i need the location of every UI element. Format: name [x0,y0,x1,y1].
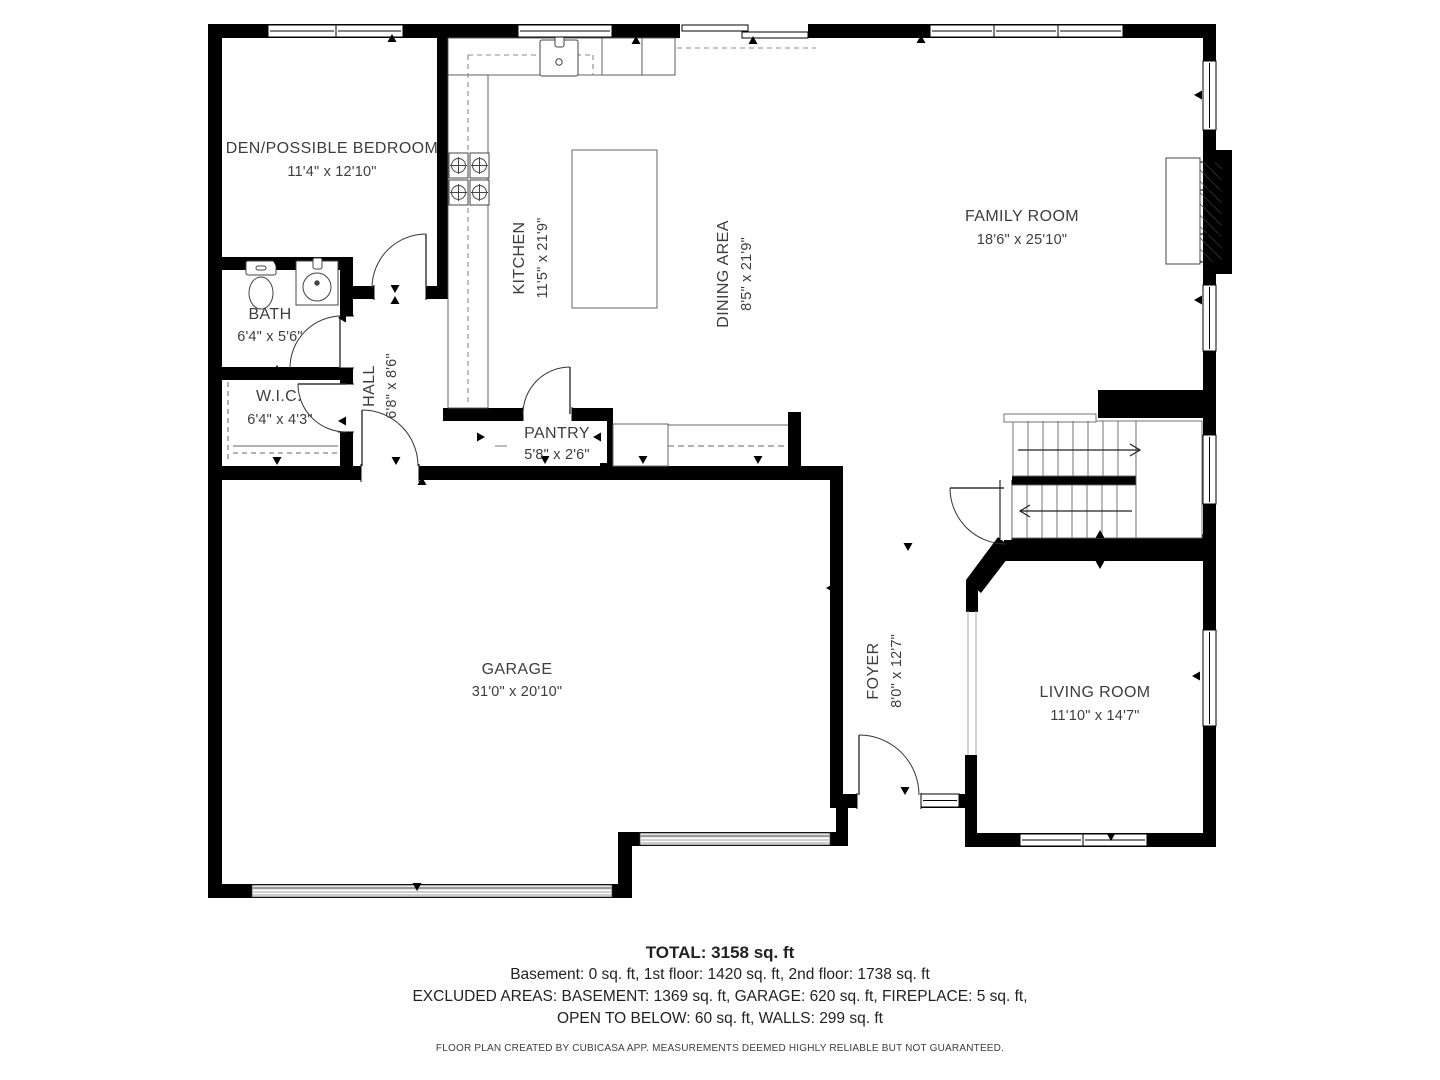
room-label-pantry: PANTRY [524,425,590,442]
opening-garage-door [361,464,419,482]
floor-plan-canvas: DEN/POSSIBLE BEDROOM 11'4" x 12'10" BATH… [0,0,1440,1080]
wall-closet-right [788,412,801,480]
family-room-side-window-1 [1203,61,1216,130]
room-label-den: DEN/POSSIBLE BEDROOM [226,140,439,157]
room-dims-dining: 8'5" x 21'9" [739,237,755,311]
room-label-dining: DINING AREA [715,220,732,328]
kitchen-counters [448,38,675,408]
room-dims-den: 11'4" x 12'10" [287,164,376,180]
room-dims-pantry: 5'8" x 2'6" [524,447,590,463]
room-dims-kitchen: 11'5" x 21'9" [535,217,551,298]
garage-door-main [252,885,612,897]
wall-outer-left [208,24,222,898]
room-dims-wic: 6'4" x 4'3" [247,412,313,428]
toilet-fixture [246,261,276,309]
appliance-2 [642,38,675,75]
room-label-foyer: FOYER [865,642,882,699]
stairs-landing [1136,421,1202,538]
room-dims-hall: 6'8" x 8'6" [384,353,400,419]
kitchen-window [518,25,612,37]
fireplace-hearth [1166,158,1200,264]
living-room-side-window [1203,630,1216,726]
wall-foyer-left [830,466,843,808]
opening-pantry-door [523,407,572,422]
opening-entry-door [857,793,921,809]
room-label-wic: W.I.C. [256,388,302,405]
living-room-bottom-window [1020,834,1147,846]
room-dims-family: 18'6" x 25'10" [977,232,1067,248]
summary-excluded-1: EXCLUDED AREAS: BASEMENT: 1369 sq. ft, G… [0,986,1440,1008]
room-dims-living: 11'10" x 14'7" [1050,708,1139,724]
page: { "rooms": { "den": {"name": "DEN/POSSIB… [0,0,1440,1080]
foyer-living-opening [968,611,976,755]
wall-bath-wic [208,367,353,380]
wall-foyer-corner [836,794,848,846]
summary-floors: Basement: 0 sq. ft, 1st floor: 1420 sq. … [0,964,1440,986]
coat-closet [613,424,788,466]
basement-stairs-door [950,488,1006,544]
family-room-window [930,25,1123,37]
summary-total: TOTAL: 3158 sq. ft [0,942,1440,964]
wall-den-door-b [426,286,450,299]
opening-bath-door [339,316,354,368]
room-dims-foyer: 8'0" x 12'7" [889,634,905,708]
stairs-top-edge [1004,414,1096,422]
room-label-living: LIVING ROOM [1039,684,1150,701]
wall-den-door-a [352,286,374,299]
summary-disclaimer: FLOOR PLAN CREATED BY CUBICASA APP. MEAS… [0,1042,1440,1056]
room-label-family: FAMILY ROOM [965,208,1079,225]
staircase [1004,414,1202,538]
opening-den-door [374,285,426,300]
den-door [372,234,426,288]
den-window [268,25,403,37]
wall-stairs-middle [1012,476,1136,485]
room-label-garage: GARAGE [482,661,553,678]
entry-sidelite-window [921,794,959,807]
summary-block: TOTAL: 3158 sq. ft Basement: 0 sq. ft, 1… [0,942,1440,1056]
pantry-door [523,367,570,414]
summary-excluded-2: OPEN TO BELOW: 60 sq. ft, WALLS: 299 sq.… [0,1008,1440,1030]
wall-garage-top [208,466,842,480]
room-labels: DEN/POSSIBLE BEDROOM 11'4" x 12'10" BATH… [226,140,1151,724]
room-label-hall: HALL [361,365,378,407]
entry-door [859,735,919,795]
opening-jambs [338,285,1012,809]
closet-cabinet [613,424,668,466]
room-label-kitchen: KITCHEN [511,221,528,294]
counter-left-run [448,75,488,408]
bath-sink-fixture [296,258,338,305]
opening-wic-door [339,384,354,432]
room-label-bath: BATH [248,306,291,323]
doors [290,234,1006,795]
wall-open-to-below [1098,390,1216,418]
wall-livingroom-left-lower [965,755,977,847]
opening-stairs-door [1000,480,1012,540]
fireplace [1166,150,1232,274]
room-dims-garage: 31'0" x 20'10" [472,684,562,700]
family-room-side-window-2 [1203,285,1216,351]
room-dims-bath: 6'4" x 5'6" [237,329,303,345]
garage-door-secondary [640,833,830,845]
stairs-window [1203,435,1216,504]
kitchen-island [572,150,657,308]
